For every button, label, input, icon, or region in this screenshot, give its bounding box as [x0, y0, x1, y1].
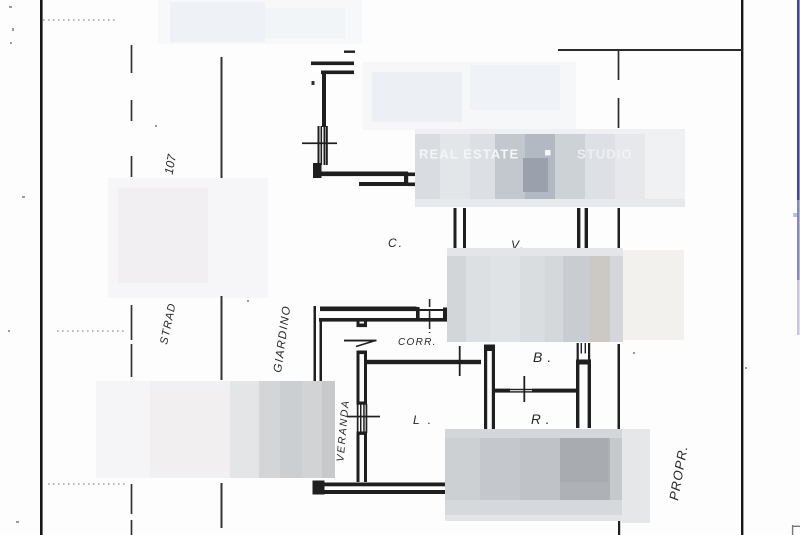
svg-text:CORR.: CORR.: [398, 337, 437, 348]
svg-text:REAL ESTATE: REAL ESTATE: [419, 147, 519, 162]
svg-text:B.: B.: [533, 349, 556, 365]
svg-text:C.: C.: [388, 236, 404, 250]
svg-text:STUDIO: STUDIO: [577, 147, 633, 162]
svg-text:L .: L .: [413, 413, 434, 427]
svg-text:R.: R.: [531, 412, 555, 427]
